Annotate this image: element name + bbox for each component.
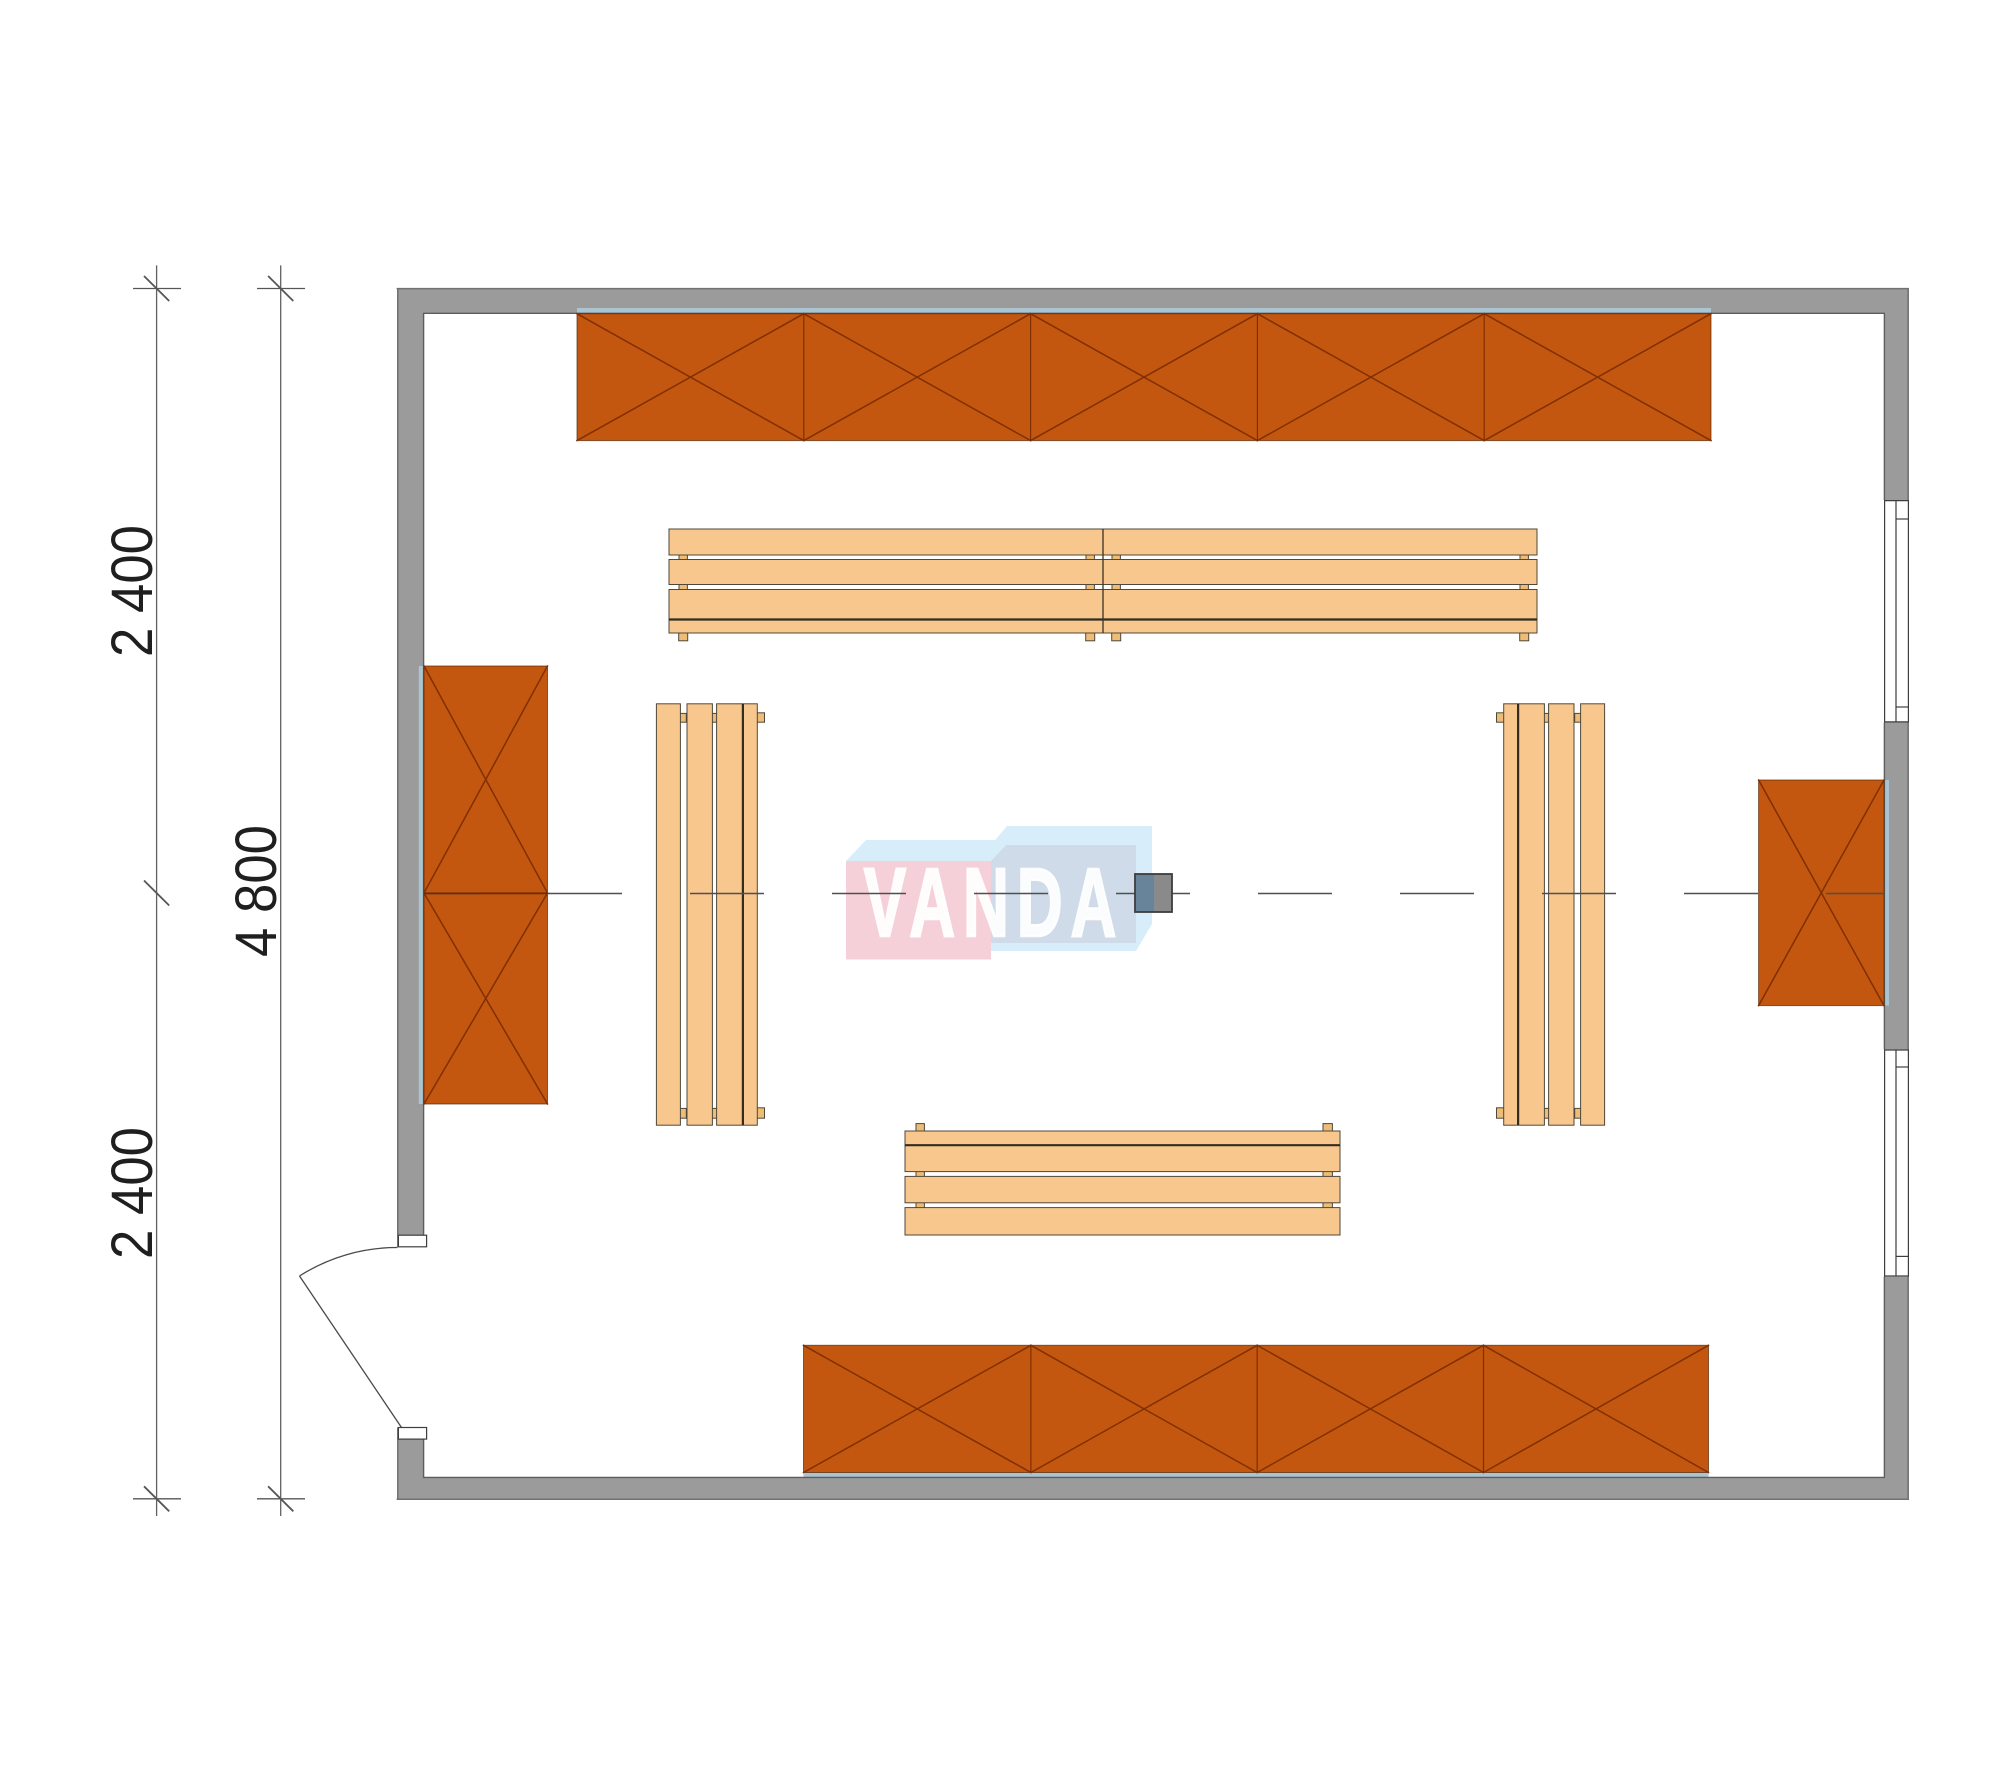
svg-text:4 800: 4 800	[224, 825, 289, 957]
svg-text:VANDA: VANDA	[864, 850, 1124, 958]
svg-text:2 400: 2 400	[100, 525, 165, 657]
svg-text:2 400: 2 400	[100, 1127, 165, 1259]
